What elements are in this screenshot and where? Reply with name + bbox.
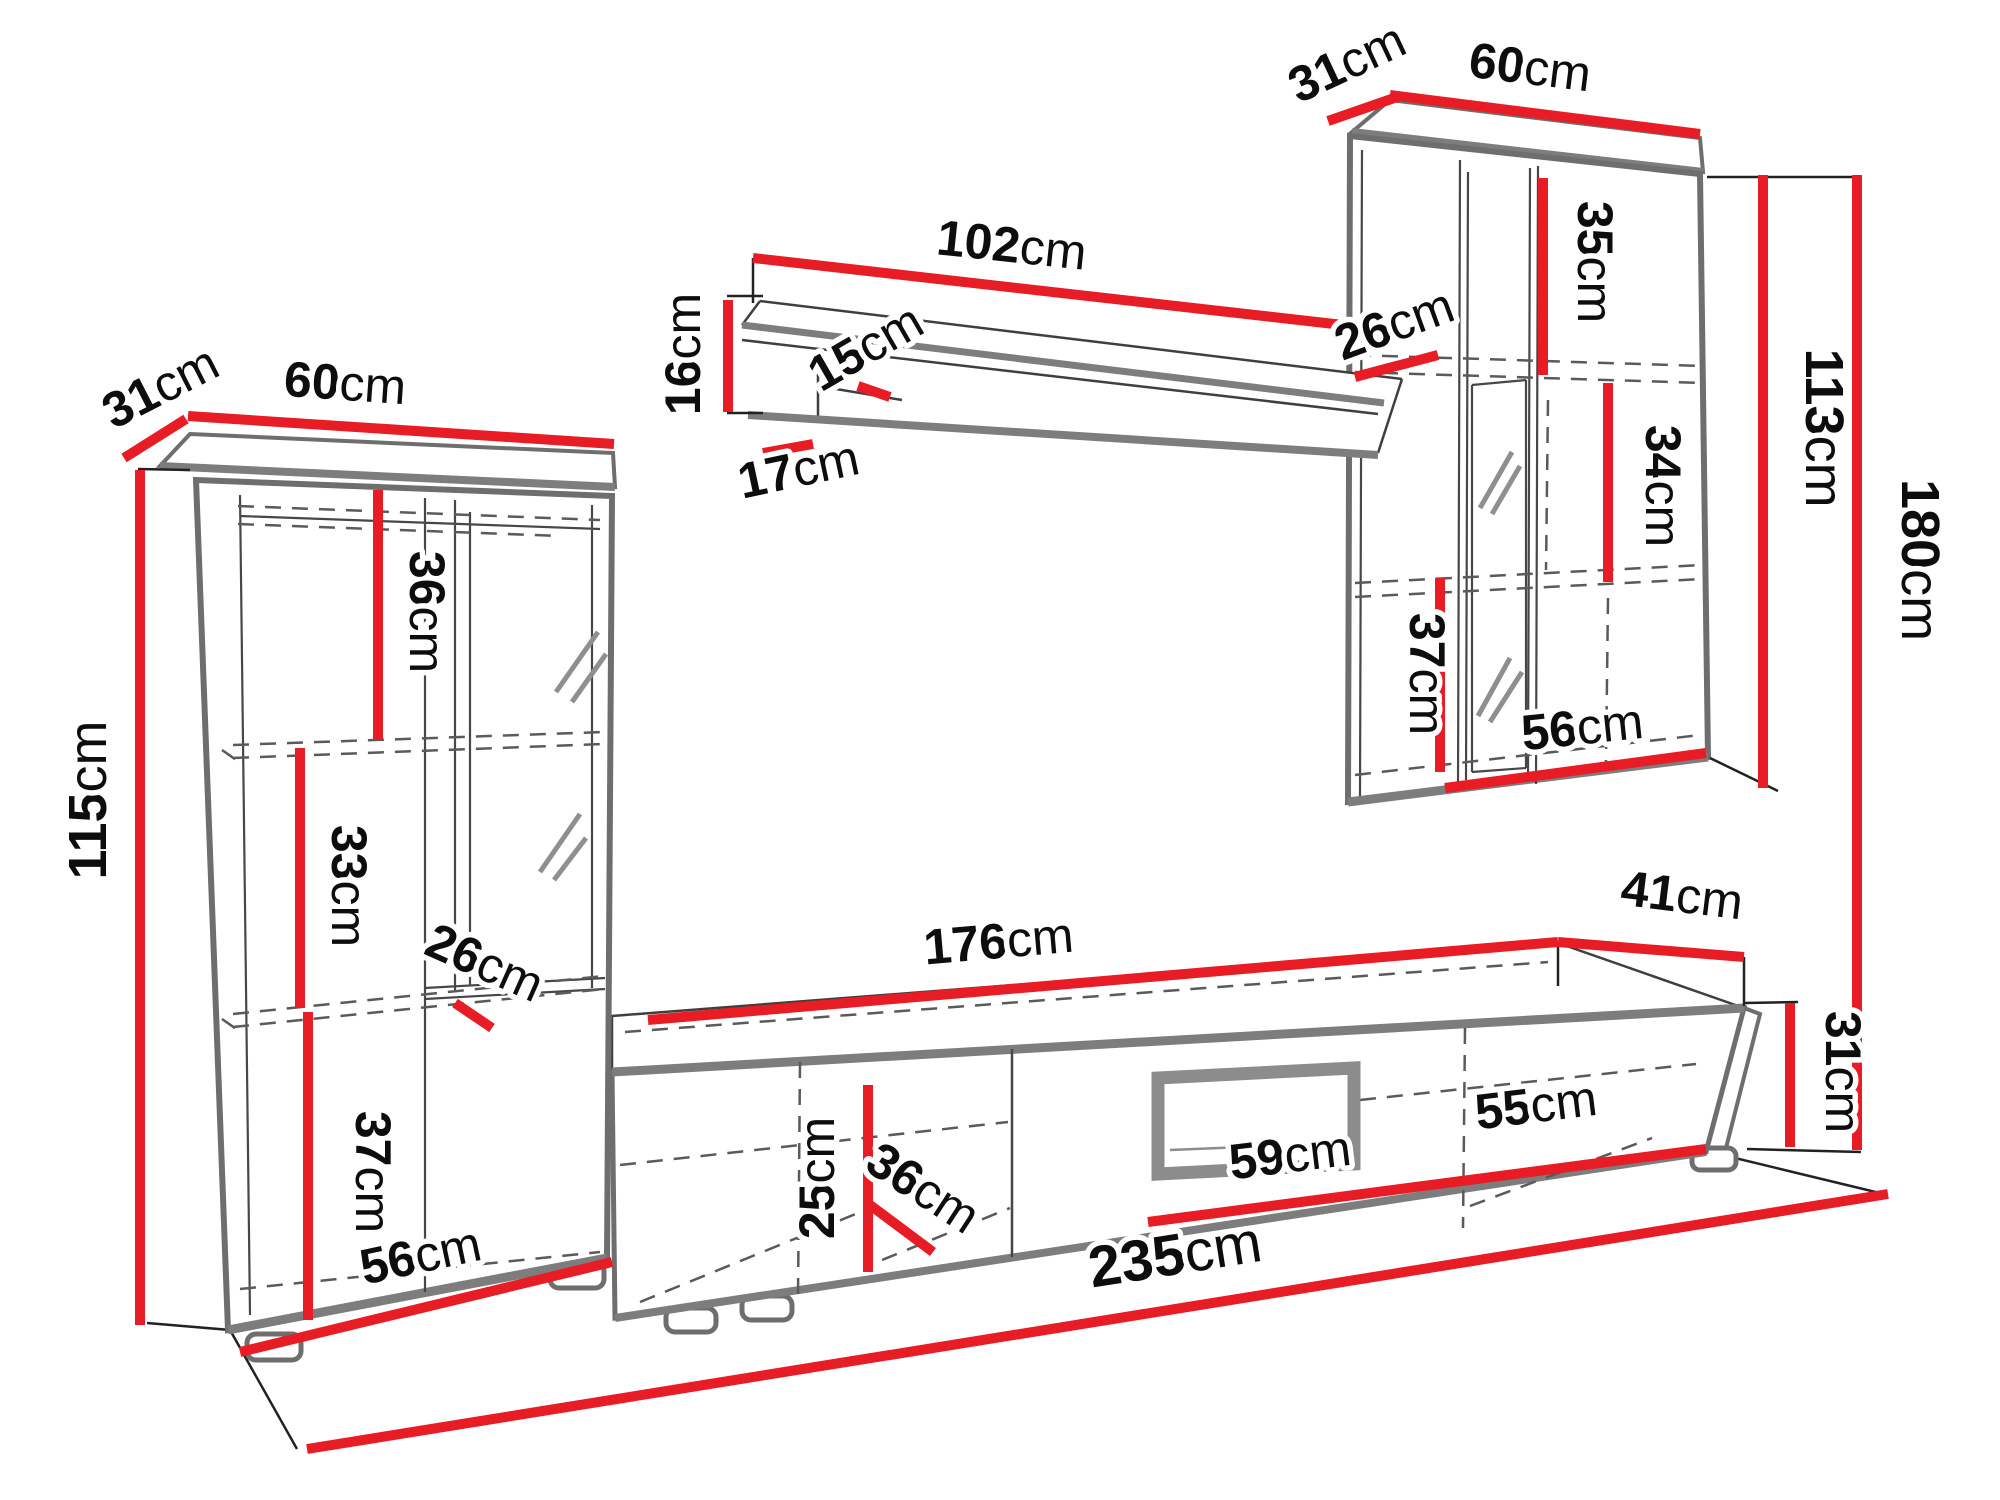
dim-label-tv-stand-length: 176cm: [921, 907, 1075, 976]
dim-label-shelf-bottom-depth: 17cm: [733, 429, 864, 509]
dim-label-left-cabinet-upper-section: 36cm: [399, 551, 455, 673]
furniture-dimensions-diagram: 31cm 60cm 115cm 36cm 33cm 26cm 37cm 56cm…: [0, 0, 2000, 1500]
diagram-canvas: 31cm 60cm 115cm 36cm 33cm 26cm 37cm 56cm…: [0, 0, 2000, 1500]
dim-label-right-cabinet-upper-section: 35cm: [1567, 201, 1623, 323]
dim-label-right-cabinet-middle-section: 34cm: [1635, 425, 1691, 547]
dim-label-right-cabinet-lower-section: 37cm: [1399, 613, 1455, 735]
dim-label-tv-stand-front-height: 25cm: [789, 1117, 845, 1239]
dim-label-shelf-length: 102cm: [934, 209, 1089, 280]
dim-label-right-cabinet-height: 113cm: [1794, 348, 1854, 507]
dim-label-shelf-height: 16cm: [655, 293, 711, 415]
dim-label-left-cabinet-height: 115cm: [58, 720, 118, 879]
dim-label-tv-stand-depth: 41cm: [1618, 860, 1746, 930]
dim-label-left-cabinet-middle-section: 33cm: [321, 825, 377, 947]
dim-label-tv-stand-height: 31cm: [1815, 1011, 1871, 1133]
dim-label-left-cabinet-depth: 31cm: [93, 334, 227, 439]
dim-label-right-cabinet-width: 60cm: [1466, 32, 1594, 102]
dim-label-left-cabinet-width: 60cm: [282, 351, 408, 415]
dim-label-total-height: 180cm: [1890, 479, 1950, 641]
dim-label-left-cabinet-lower-section: 37cm: [345, 1111, 401, 1233]
